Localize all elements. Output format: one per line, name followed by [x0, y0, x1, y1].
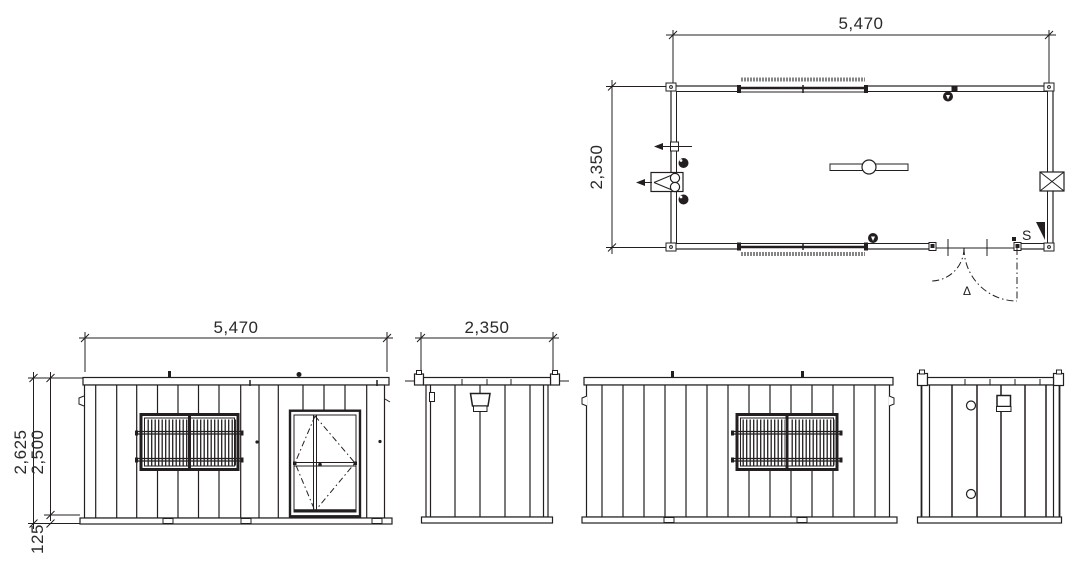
drawing-sheet: 5,470 2,350: [0, 0, 1077, 561]
window-shutter-front: [135, 415, 244, 470]
container-body: [930, 385, 1054, 517]
dim-plan-depth: 2,350: [587, 80, 668, 254]
roof-band: [83, 378, 389, 386]
front-width-label: 5,470: [213, 318, 258, 337]
dim-plan-width: 5,470: [666, 14, 1056, 84]
switch-dot: [1012, 237, 1016, 241]
base-skid: [422, 517, 553, 523]
end-elevation-a: 2,350: [405, 318, 569, 523]
panel-dot: [255, 440, 258, 443]
vent-hole-icon: [967, 490, 976, 499]
technical-drawing-canvas: 5,470 2,350: [0, 0, 1077, 561]
dim-front-width: 5,470: [79, 318, 393, 372]
socket-icon: [679, 195, 689, 205]
ceiling-light-symbol: [830, 160, 908, 174]
vent-arrow-icon: [654, 142, 692, 151]
dim-end-width: 2,350: [415, 318, 559, 372]
lamp-dot-icon: [943, 92, 953, 102]
roof-band: [584, 378, 893, 386]
rear-elevation: [582, 371, 897, 523]
plan-door-opening: [929, 239, 1021, 256]
front-skid-height-label: 125: [28, 524, 47, 554]
window-shutter-rear: [731, 415, 843, 470]
junction-box-icon: [997, 396, 1012, 412]
lamp-dot-icon: [868, 233, 878, 243]
end-elevation-b: [918, 370, 1064, 523]
dim-front-heights: 2,625 2,500 125: [11, 372, 84, 554]
vent-box-icon: [471, 394, 491, 412]
plan-window-top: [737, 78, 868, 94]
delta-symbol: Δ: [963, 284, 971, 298]
entrance-door-front: [290, 411, 360, 517]
door-marker-triangle-icon: [1036, 222, 1045, 240]
floor-plan: 5,470 2,350: [587, 14, 1064, 301]
panel-dot: [378, 440, 381, 443]
end-width-label: 2,350: [464, 318, 509, 337]
vent-hole-icon: [967, 401, 976, 410]
plan-window-bottom: [737, 242, 868, 256]
plan-door-swing-arcs: [931, 248, 1017, 301]
electric-box-symbol: [1040, 172, 1064, 191]
socket-icon: [679, 158, 689, 168]
front-elevation: 5,470 2,625 2,500 125: [11, 318, 393, 554]
plan-depth-label: 2,350: [587, 144, 606, 189]
base-skid: [582, 517, 897, 523]
base-skid: [80, 518, 392, 524]
switch-label: S: [1022, 227, 1031, 243]
pipe-clamp-icon: [430, 393, 435, 402]
front-body-height-label: 2,500: [28, 429, 47, 474]
door-handle-dot: [318, 463, 322, 467]
plan-width-label: 5,470: [838, 14, 883, 33]
base-skid: [918, 517, 1062, 523]
heater-symbol: [636, 173, 683, 192]
